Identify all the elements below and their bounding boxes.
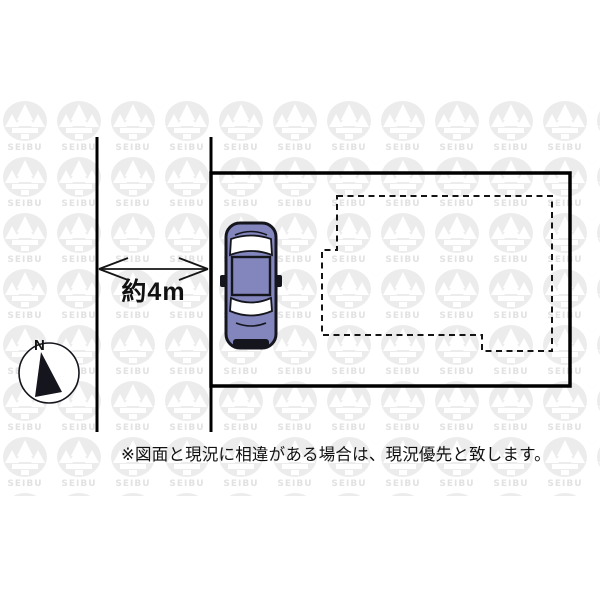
car-side-trim <box>225 247 228 261</box>
diagram-canvas: SEIBU <box>0 0 600 600</box>
car-side-trim <box>225 305 228 319</box>
compass-north-label: N <box>34 337 45 354</box>
car-side-trim <box>275 305 278 319</box>
car-side-trim <box>275 247 278 261</box>
car-roof <box>232 257 270 295</box>
compass <box>19 343 79 403</box>
car-top-view <box>220 223 282 348</box>
road-width-label: 約4m <box>97 278 210 307</box>
plot-diagram: SEIBU <box>0 0 600 600</box>
watermark-pattern <box>0 96 600 496</box>
disclaimer-text: ※図面と現況に相違がある場合は、現況優先と致します。 <box>121 446 551 465</box>
car-rear-bumper <box>233 339 269 347</box>
